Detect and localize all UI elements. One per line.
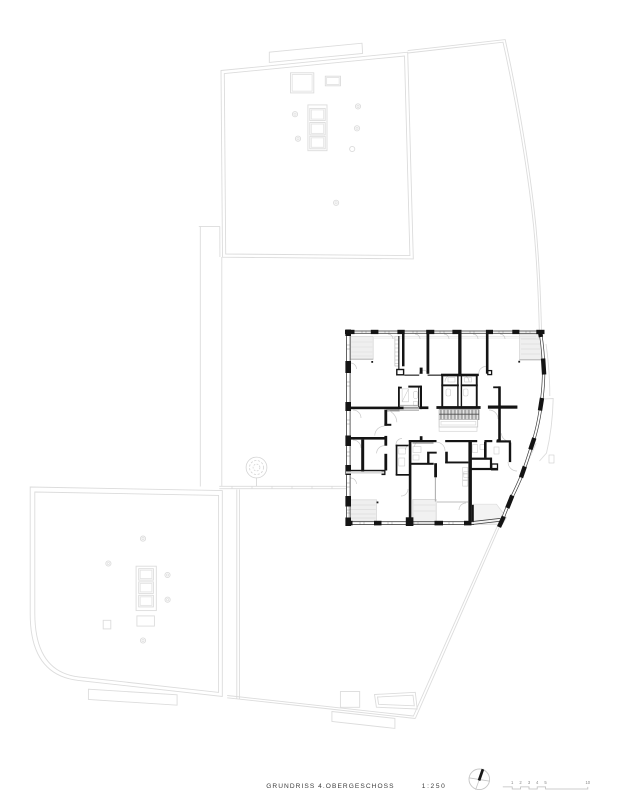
svg-text:GRUNDRISS 4.OBERGESCHOSS: GRUNDRISS 4.OBERGESCHOSS xyxy=(266,783,394,790)
svg-text:10: 10 xyxy=(585,780,590,785)
svg-text:1:250: 1:250 xyxy=(422,783,447,790)
